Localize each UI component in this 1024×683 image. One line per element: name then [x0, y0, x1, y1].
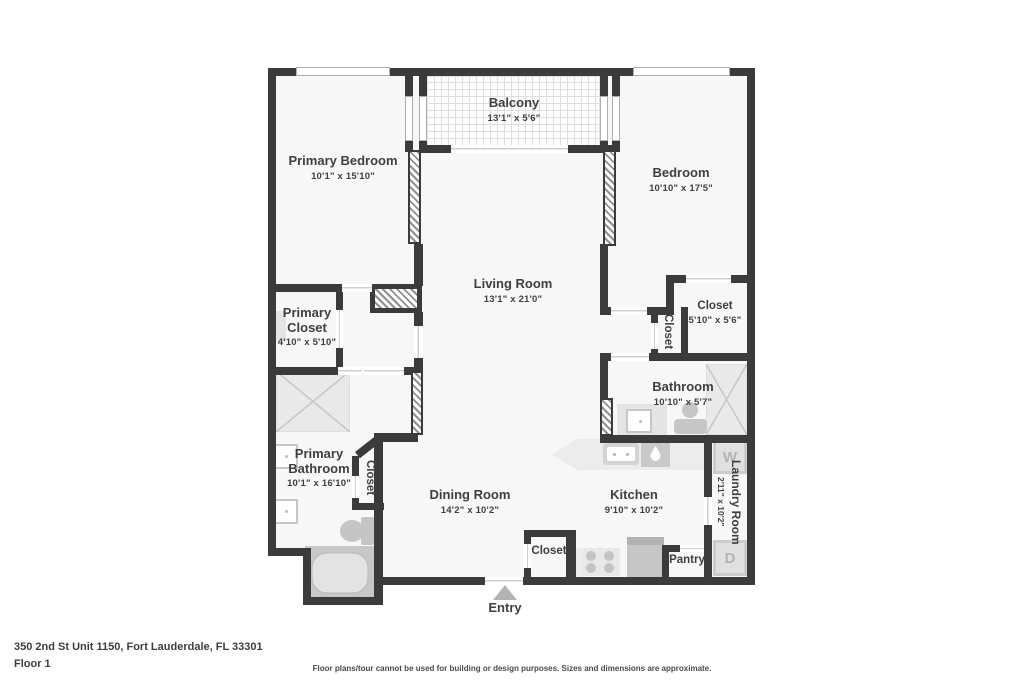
window — [296, 67, 390, 76]
bathtub-icon — [305, 546, 375, 598]
wall — [414, 312, 423, 326]
wall — [374, 577, 755, 585]
room-name: Closet — [675, 300, 755, 313]
room-dims: 10'10" x 17'5" — [611, 183, 751, 194]
hatched-wall — [600, 398, 613, 436]
closet-label: Closet — [364, 451, 376, 505]
room-name: Balcony — [444, 96, 584, 111]
window — [633, 67, 730, 76]
wall — [704, 443, 712, 497]
wall — [524, 530, 572, 537]
window — [419, 96, 427, 141]
entry-arrow-icon — [493, 585, 517, 600]
shower-icon — [276, 371, 350, 432]
door-opening — [611, 307, 647, 315]
room-name: Primary Bathroom — [264, 447, 374, 476]
room-dims: 13'1" x 5'6" — [444, 113, 584, 124]
room-label-laundry-room: Laundry Room — [729, 450, 743, 554]
refrigerator-icon — [627, 537, 664, 577]
wall — [651, 349, 658, 361]
room-label-living-room: Living Room 13'1" x 21'0" — [443, 277, 583, 305]
room-dims-laundry-room: 2'11" x 10'2" — [716, 462, 726, 542]
room-name: Primary Bedroom — [273, 154, 413, 169]
wall — [268, 367, 338, 375]
wall — [303, 597, 382, 605]
room-name: Bathroom — [613, 380, 753, 395]
toilet-icon — [338, 514, 376, 546]
room-label-dining-room: Dining Room 14'2" x 10'2" — [400, 488, 540, 516]
wall — [524, 530, 531, 544]
room-dims: 4'10" x 5'10" — [262, 337, 352, 348]
door-opening — [338, 367, 362, 375]
room-dims: 5'10" x 5'6" — [675, 315, 755, 326]
door-opening — [611, 353, 649, 361]
kitchen-sink-icon — [603, 443, 639, 465]
disclaimer-text: Floor plans/tour cannot be used for buil… — [0, 664, 1024, 673]
wall — [600, 435, 755, 443]
entry-opening — [485, 577, 523, 585]
hatched-wall — [411, 371, 423, 435]
door-opening — [680, 545, 704, 552]
floor-plan-page: W D — [0, 0, 1024, 683]
wall — [600, 244, 608, 315]
door-opening — [364, 367, 404, 375]
room-label-primary-closet: Primary Closet 4'10" x 5'10" — [262, 306, 352, 348]
room-dims: 10'1" x 16'10" — [264, 478, 374, 489]
room-name: Primary Closet — [262, 306, 352, 335]
wall — [419, 145, 451, 153]
sink-icon — [626, 409, 652, 433]
exterior-patch — [266, 556, 303, 601]
closet-label: Closet — [662, 306, 674, 358]
room-dims: 14'2" x 10'2" — [400, 505, 540, 516]
room-dims: 13'1" x 21'0" — [443, 294, 583, 305]
address-text: 350 2nd St Unit 1150, Fort Lauderdale, F… — [14, 641, 263, 653]
room-label-balcony: Balcony 13'1" x 5'6" — [444, 96, 584, 124]
hatched-wall — [370, 284, 422, 313]
door-opening — [451, 145, 568, 153]
dishwasher-icon — [641, 439, 670, 467]
door-opening — [686, 275, 731, 283]
door-opening — [704, 497, 712, 525]
window — [612, 96, 620, 141]
room-label-bedroom: Bedroom 10'10" x 17'5" — [611, 166, 751, 194]
wall — [747, 68, 755, 585]
wall — [524, 568, 531, 580]
wall — [268, 284, 342, 292]
entry-label: Entry — [455, 601, 555, 616]
room-name: Kitchen — [564, 488, 704, 503]
room-dims: 9'10" x 10'2" — [564, 505, 704, 516]
room-name: Bedroom — [611, 166, 751, 181]
hatched-wall — [603, 150, 616, 246]
door-opening — [342, 284, 372, 292]
room-label-kitchen: Kitchen 9'10" x 10'2" — [564, 488, 704, 516]
room-dims: 10'1" x 15'10" — [273, 171, 413, 182]
wall — [651, 311, 658, 323]
door-opening — [651, 323, 658, 349]
room-label-closet: Closet 5'10" x 5'6" — [675, 300, 755, 326]
door-opening — [414, 326, 423, 358]
room-name: Living Room — [443, 277, 583, 292]
room-dims: 10'10" x 5'7" — [613, 397, 753, 408]
wall — [414, 244, 423, 286]
window — [405, 96, 413, 141]
room-label-primary-bathroom: Primary Bathroom 10'1" x 16'10" — [264, 447, 374, 489]
room-name: Dining Room — [400, 488, 540, 503]
closet-label: Closet — [527, 545, 571, 558]
stove-icon — [582, 548, 620, 576]
room-label-bathroom: Bathroom 10'10" x 5'7" — [613, 380, 753, 408]
room-label-primary-bedroom: Primary Bedroom 10'1" x 15'10" — [273, 154, 413, 182]
pantry-label: Pantry — [664, 554, 710, 567]
window — [600, 96, 608, 141]
